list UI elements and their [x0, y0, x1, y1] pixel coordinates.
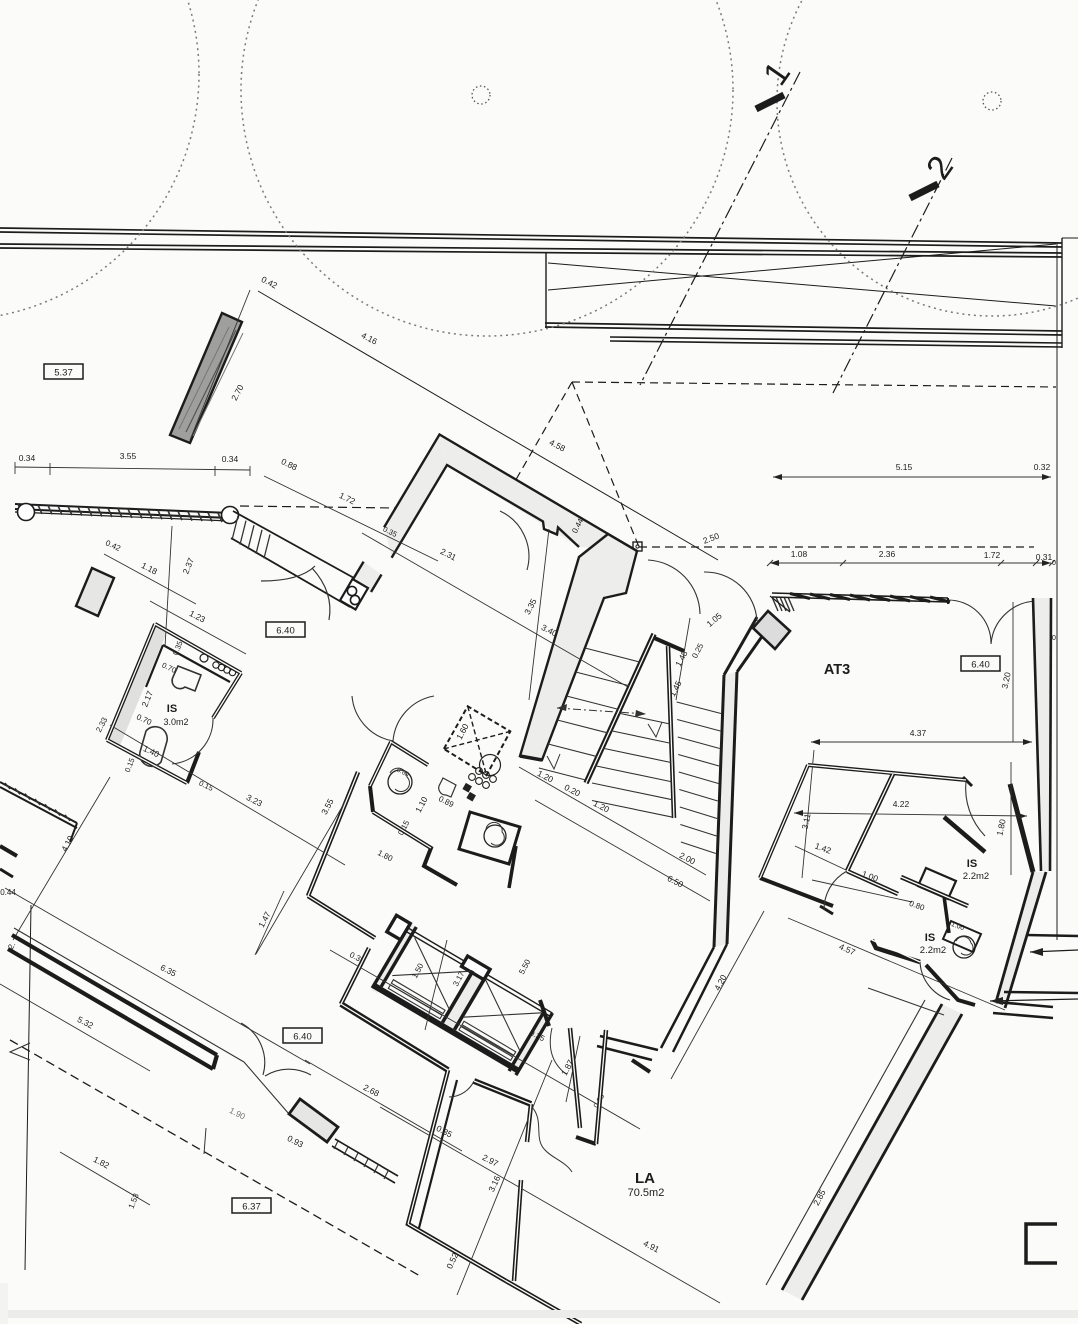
svg-text:4.22: 4.22 — [893, 799, 910, 809]
svg-text:6.37: 6.37 — [242, 1202, 261, 1213]
svg-text:0: 0 — [1052, 635, 1056, 642]
svg-text:6.40: 6.40 — [293, 1032, 312, 1043]
svg-text:AT3: AT3 — [824, 662, 850, 678]
svg-text:5.15: 5.15 — [896, 462, 913, 472]
svg-text:6.40: 6.40 — [971, 660, 990, 671]
svg-text:IS: IS — [967, 858, 977, 870]
svg-text:1.72: 1.72 — [984, 550, 1001, 560]
svg-text:5.37: 5.37 — [54, 368, 73, 379]
svg-text:3.55: 3.55 — [120, 451, 137, 461]
svg-text:0.44: 0.44 — [0, 888, 16, 897]
svg-text:1.08: 1.08 — [791, 549, 808, 559]
svg-text:IS: IS — [167, 703, 177, 715]
svg-text:LA: LA — [635, 1170, 655, 1187]
svg-text:2.2m2: 2.2m2 — [963, 871, 989, 882]
svg-text:0.34: 0.34 — [222, 454, 239, 464]
svg-text:0: 0 — [1052, 560, 1056, 567]
svg-text:2.36: 2.36 — [879, 549, 896, 559]
svg-text:0.32: 0.32 — [1034, 462, 1051, 472]
svg-text:IS: IS — [925, 932, 935, 944]
svg-text:0.34: 0.34 — [19, 453, 36, 463]
svg-text:2.2m2: 2.2m2 — [920, 945, 946, 956]
svg-text:3.0m2: 3.0m2 — [163, 717, 188, 727]
svg-text:4.37: 4.37 — [910, 728, 927, 738]
svg-text:70.5m2: 70.5m2 — [628, 1187, 665, 1199]
svg-text:6.40: 6.40 — [276, 626, 295, 637]
